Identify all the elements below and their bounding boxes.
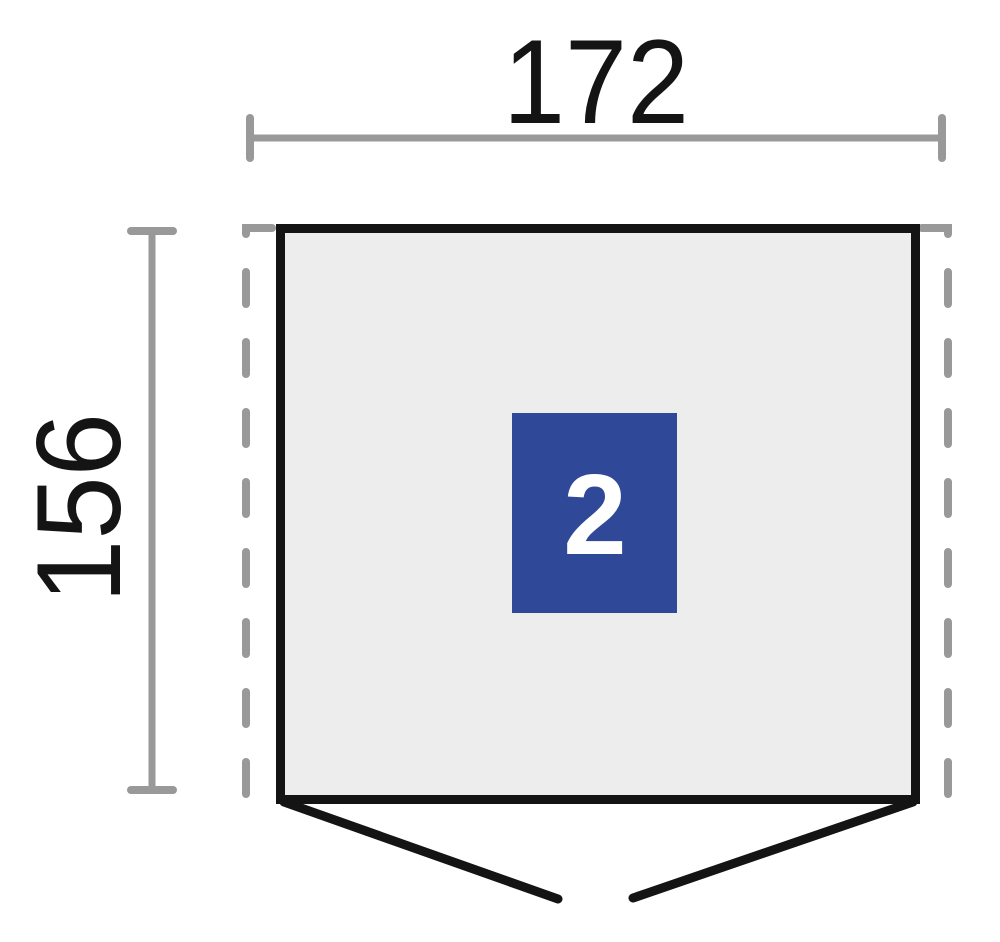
door-swing bbox=[284, 802, 913, 899]
door-swing-left bbox=[284, 802, 558, 899]
dashed-outline-right bbox=[922, 228, 948, 800]
floor-plan-diagram: 172 156 2 bbox=[0, 0, 1000, 942]
floor-plan-canvas: 172 156 2 bbox=[0, 0, 1000, 942]
dimension-height-label: 156 bbox=[12, 413, 146, 603]
dimension-height: 156 bbox=[12, 231, 173, 790]
door-swing-right bbox=[633, 802, 913, 898]
dashed-outline-left bbox=[246, 228, 272, 800]
zone-marker: 2 bbox=[512, 413, 677, 613]
zone-marker-label: 2 bbox=[563, 452, 626, 579]
dimension-width-label: 172 bbox=[503, 15, 689, 149]
dimension-width: 172 bbox=[250, 15, 942, 158]
